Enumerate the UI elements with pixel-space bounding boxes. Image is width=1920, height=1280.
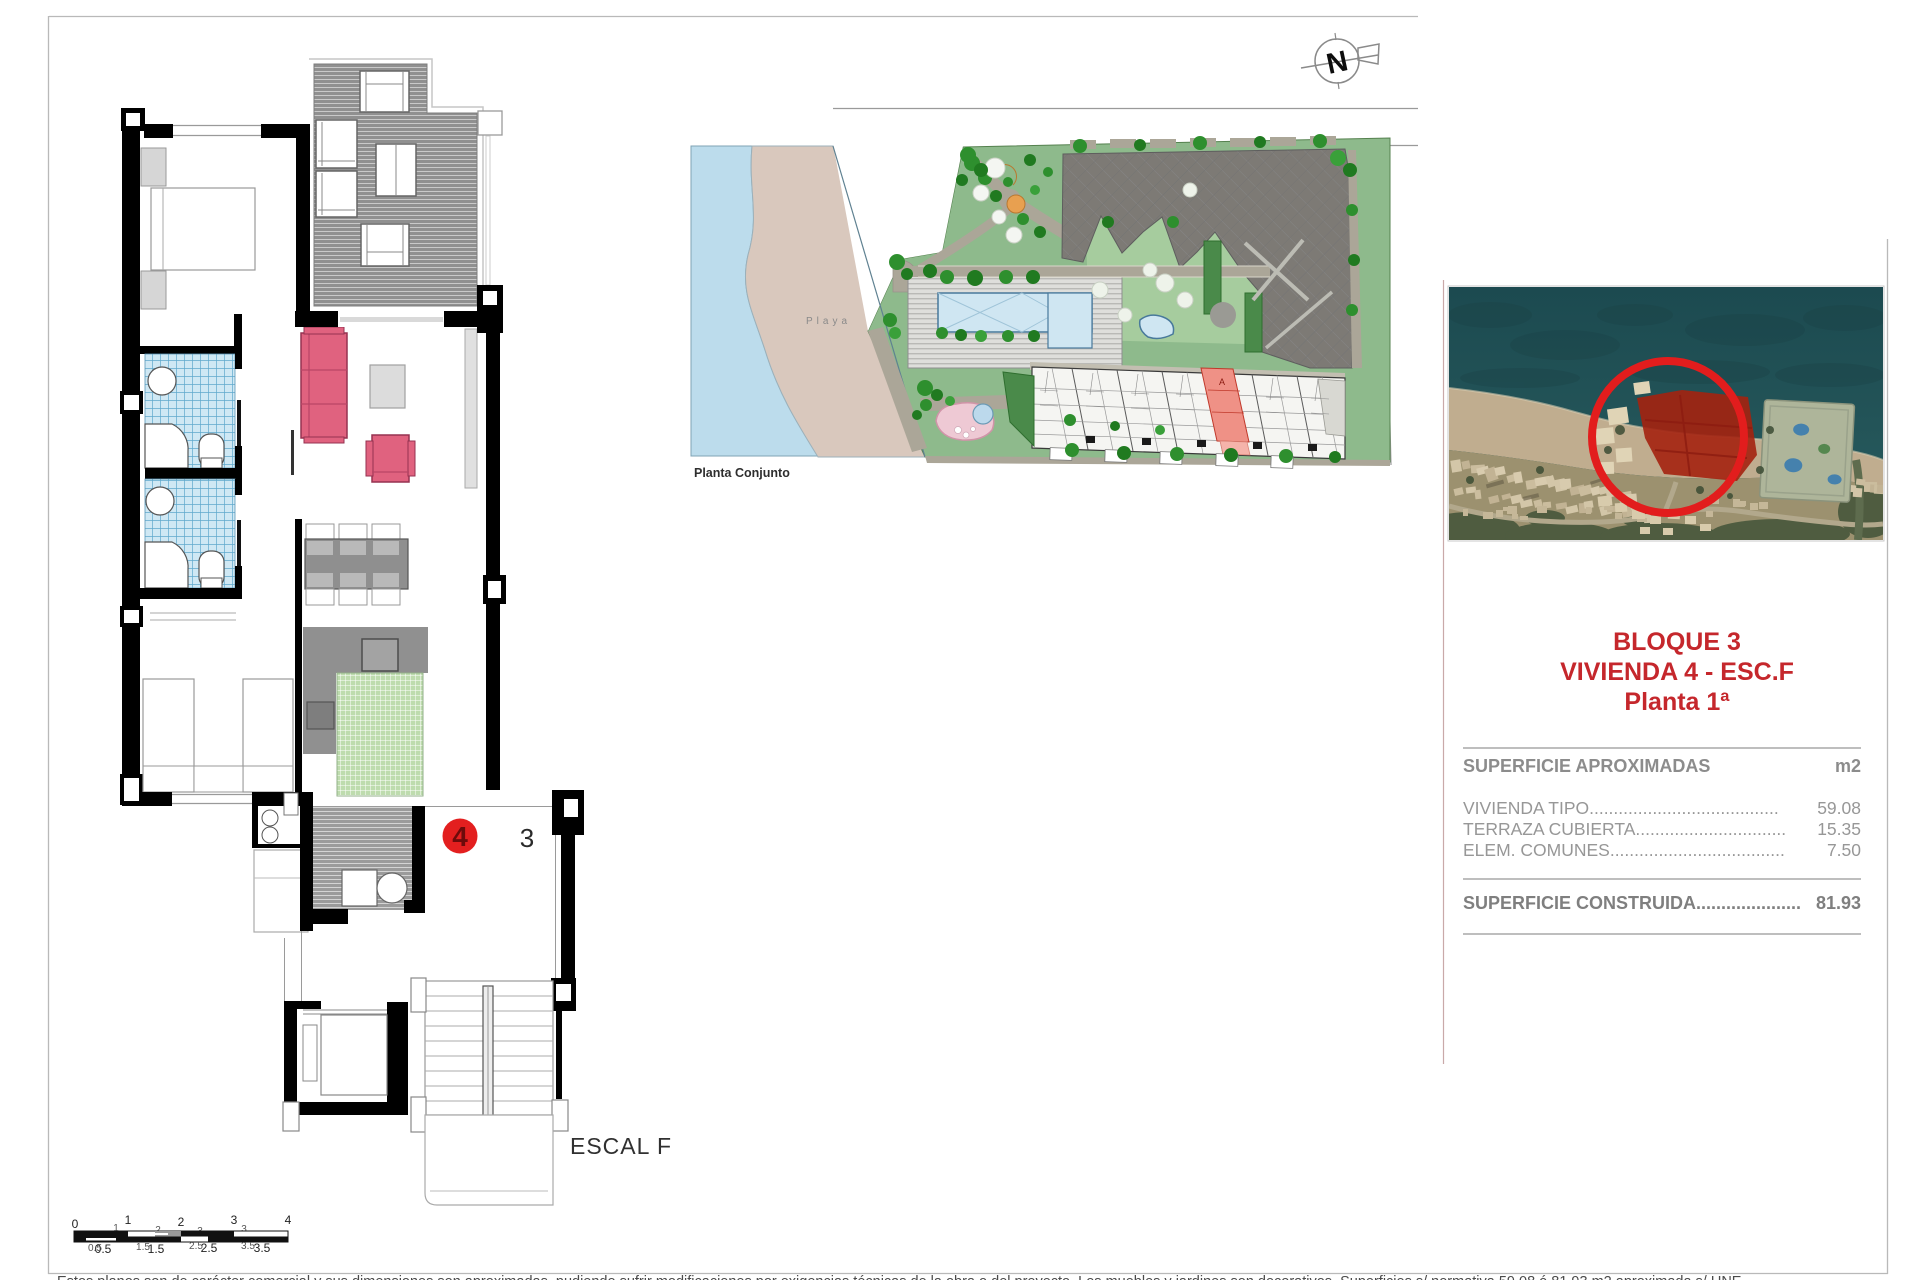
svg-text:2.5: 2.5: [201, 1241, 218, 1255]
svg-text:TERRAZA CUBIERTA..............: TERRAZA CUBIERTA........................…: [1463, 819, 1786, 839]
svg-text:15.35: 15.35: [1817, 819, 1861, 839]
svg-text:3: 3: [520, 823, 534, 853]
svg-text:m2: m2: [1835, 756, 1861, 776]
svg-text:Estos planos son de carácter c: Estos planos son de carácter comercial y…: [57, 1274, 1742, 1280]
svg-text:1: 1: [125, 1213, 132, 1227]
svg-text:0.5: 0.5: [88, 1243, 102, 1254]
svg-text:0: 0: [72, 1217, 79, 1231]
svg-text:A: A: [1219, 377, 1225, 387]
svg-text:7.50: 7.50: [1827, 840, 1861, 860]
svg-text:3.5: 3.5: [241, 1241, 255, 1252]
svg-text:Planta Conjunto: Planta Conjunto: [694, 466, 790, 480]
svg-text:Playa: Playa: [806, 316, 851, 327]
svg-text:3: 3: [231, 1213, 238, 1227]
svg-text:2.5: 2.5: [189, 1241, 203, 1252]
svg-text:1.5: 1.5: [148, 1242, 165, 1256]
svg-text:ESCAL F: ESCAL F: [570, 1133, 672, 1159]
svg-text:BLOQUE 3: BLOQUE 3: [1613, 628, 1741, 656]
svg-text:SUPERFICIE APROXIMADAS: SUPERFICIE APROXIMADAS: [1463, 756, 1710, 776]
svg-text:VIVIENDA TIPO.................: VIVIENDA TIPO...........................…: [1463, 798, 1779, 818]
svg-text:81.93: 81.93: [1816, 893, 1861, 913]
svg-text:1.5: 1.5: [136, 1242, 150, 1253]
svg-text:4: 4: [452, 821, 468, 852]
svg-text:ELEM. COMUNES.................: ELEM. COMUNES...........................…: [1463, 840, 1785, 860]
svg-text:2: 2: [178, 1215, 185, 1229]
svg-text:Planta 1ª: Planta 1ª: [1624, 688, 1730, 716]
svg-text:SUPERFICIE CONSTRUIDA.........: SUPERFICIE CONSTRUIDA...................…: [1463, 893, 1801, 913]
svg-text:4: 4: [285, 1213, 292, 1227]
svg-text:VIVIENDA 4 - ESC.F: VIVIENDA 4 - ESC.F: [1560, 658, 1794, 686]
svg-text:3.5: 3.5: [254, 1241, 271, 1255]
svg-text:59.08: 59.08: [1817, 798, 1861, 818]
